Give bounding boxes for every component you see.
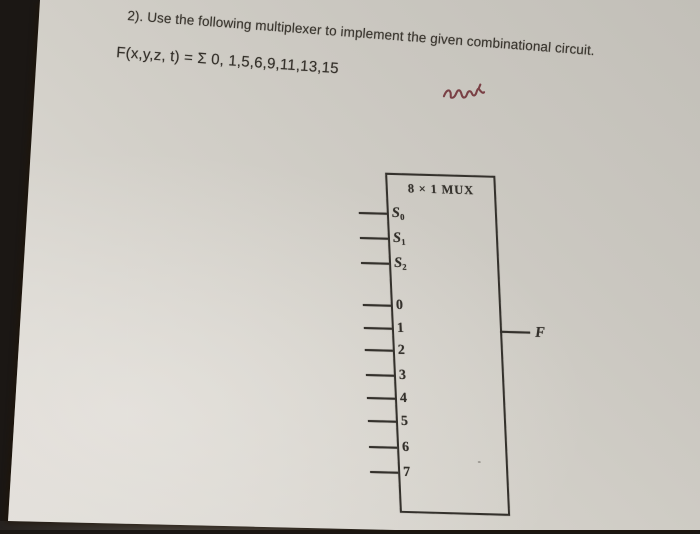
output-row-f: F xyxy=(500,322,546,343)
data-input-row-1: 1 xyxy=(363,318,404,339)
wire-stub xyxy=(500,331,530,334)
wire-stub xyxy=(364,327,392,330)
worksheet-paper: 2). Use the following multiplexer to imp… xyxy=(0,0,700,530)
data-input-row-0: 0 xyxy=(362,295,403,316)
select-sub: 1 xyxy=(401,237,406,247)
select-sub: 0 xyxy=(400,212,405,222)
data-input-row-3: 3 xyxy=(366,365,407,386)
wire-stub xyxy=(361,262,389,265)
data-input-label-7: 7 xyxy=(403,466,411,480)
select-input-label-s1: S1 xyxy=(393,231,406,247)
paper-speck xyxy=(478,461,481,463)
photo-scene: 2). Use the following multiplexer to imp… xyxy=(0,0,700,530)
data-input-label-0: 0 xyxy=(396,299,404,313)
select-input-row-s2: S2 xyxy=(361,253,407,274)
wire-stub xyxy=(370,471,398,474)
select-input-row-s1: S1 xyxy=(360,228,406,249)
wire-stub xyxy=(368,420,396,423)
data-input-row-7: 7 xyxy=(370,462,411,483)
data-input-label-4: 4 xyxy=(400,392,408,406)
select-input-label-s2: S2 xyxy=(394,256,407,272)
select-input-row-s0: S0 xyxy=(358,203,404,224)
mux-title: 8 × 1 MUX xyxy=(387,181,494,199)
data-input-row-4: 4 xyxy=(367,388,408,409)
data-input-label-2: 2 xyxy=(398,344,406,358)
select-sub: 2 xyxy=(402,262,407,272)
data-input-label-3: 3 xyxy=(399,369,407,383)
data-input-row-6: 6 xyxy=(369,437,410,458)
wire-stub xyxy=(369,446,397,449)
select-input-label-s0: S0 xyxy=(392,206,405,222)
wire-stub xyxy=(365,349,393,352)
output-label-f: F xyxy=(535,325,546,340)
data-input-label-1: 1 xyxy=(397,322,405,336)
data-input-label-5: 5 xyxy=(401,415,409,429)
pen-scribble-icon xyxy=(441,80,488,108)
wire-stub xyxy=(360,237,388,240)
wire-stub xyxy=(366,374,394,377)
data-input-label-6: 6 xyxy=(402,441,410,455)
wire-stub xyxy=(359,212,387,215)
paper-shadow: 2). Use the following multiplexer to imp… xyxy=(0,0,700,530)
mux-diagram: 8 × 1 MUX S0 S1 S2 xyxy=(357,170,578,534)
function-formula: F(x,y,z, t) = Σ 0, 1,5,6,9,11,13,15 xyxy=(116,44,340,77)
data-input-row-5: 5 xyxy=(368,411,409,432)
wire-stub xyxy=(363,304,391,307)
data-input-row-2: 2 xyxy=(364,340,405,361)
wire-stub xyxy=(367,397,395,400)
